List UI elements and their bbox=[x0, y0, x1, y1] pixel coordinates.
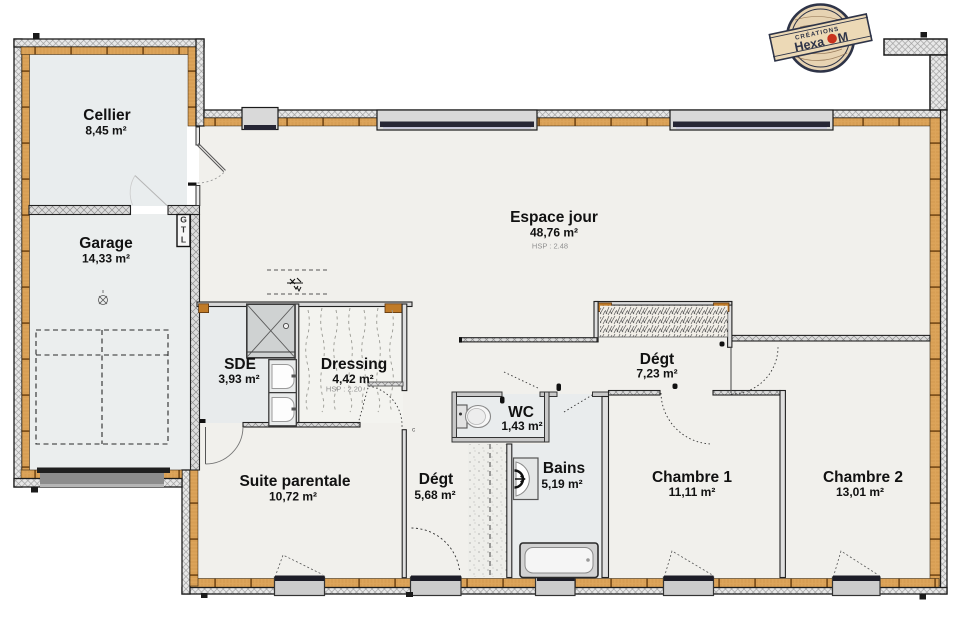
svg-text:Dressing: Dressing bbox=[321, 356, 387, 373]
svg-text:14,33 m²: 14,33 m² bbox=[82, 252, 130, 266]
svg-text:3,93 m²: 3,93 m² bbox=[218, 372, 259, 386]
svg-text:Chambre 2: Chambre 2 bbox=[823, 469, 903, 486]
svg-text:G: G bbox=[180, 215, 187, 225]
svg-text:1,43 m²: 1,43 m² bbox=[501, 419, 542, 433]
svg-text:13,01 m²: 13,01 m² bbox=[836, 485, 884, 499]
svg-text:11,11 m²: 11,11 m² bbox=[669, 485, 716, 499]
svg-text:8,45 m²: 8,45 m² bbox=[85, 124, 126, 138]
svg-text:HSP : 2.48: HSP : 2.48 bbox=[532, 242, 568, 251]
svg-text:SDE: SDE bbox=[224, 356, 256, 373]
svg-text:Dégt: Dégt bbox=[640, 351, 674, 368]
svg-text:5,19 m²: 5,19 m² bbox=[541, 477, 582, 491]
svg-text:Garage: Garage bbox=[79, 235, 133, 252]
svg-text:48,76 m²: 48,76 m² bbox=[530, 226, 578, 240]
svg-text:5,68 m²: 5,68 m² bbox=[414, 488, 455, 502]
svg-text:Suite parentale: Suite parentale bbox=[239, 473, 350, 490]
svg-text:Bains: Bains bbox=[543, 460, 585, 477]
svg-text:Chambre 1: Chambre 1 bbox=[652, 469, 732, 486]
svg-text:Dégt: Dégt bbox=[419, 471, 453, 488]
svg-text:HSP : 2.20: HSP : 2.20 bbox=[326, 385, 362, 394]
svg-text:L: L bbox=[181, 235, 186, 245]
svg-text:Espace jour: Espace jour bbox=[510, 209, 598, 226]
svg-text:10,72 m²: 10,72 m² bbox=[269, 490, 317, 504]
svg-text:Cellier: Cellier bbox=[83, 107, 130, 124]
svg-text:7,23 m²: 7,23 m² bbox=[636, 367, 677, 381]
svg-text:T: T bbox=[181, 225, 187, 235]
